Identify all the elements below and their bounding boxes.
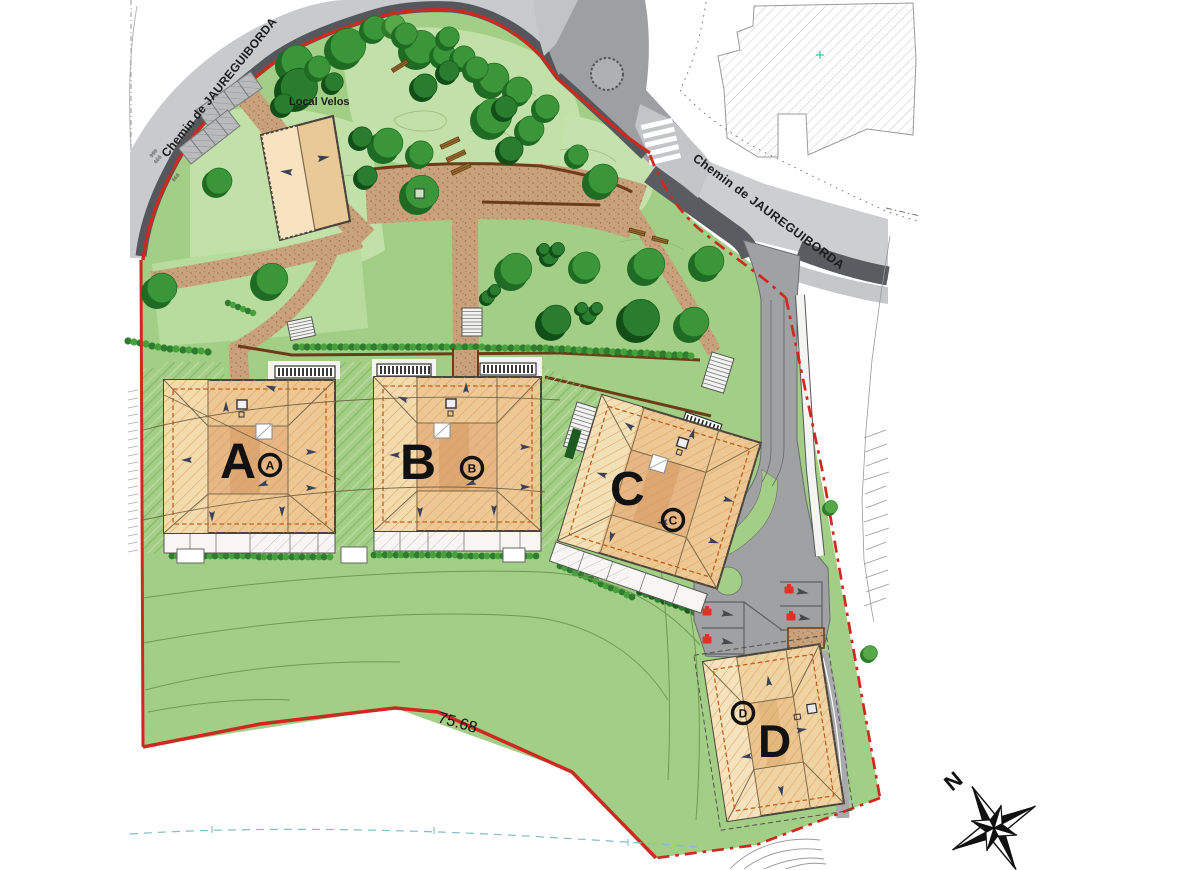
svg-text:B: B	[468, 462, 477, 476]
svg-text:B: B	[400, 434, 436, 490]
svg-text:A: A	[266, 459, 275, 473]
svg-text:D: D	[739, 707, 748, 721]
svg-text:Local Velos: Local Velos	[289, 96, 350, 108]
svg-text:C: C	[669, 514, 678, 528]
svg-text:A: A	[220, 433, 256, 489]
svg-text:D: D	[758, 715, 791, 767]
svg-text:C: C	[610, 463, 645, 516]
